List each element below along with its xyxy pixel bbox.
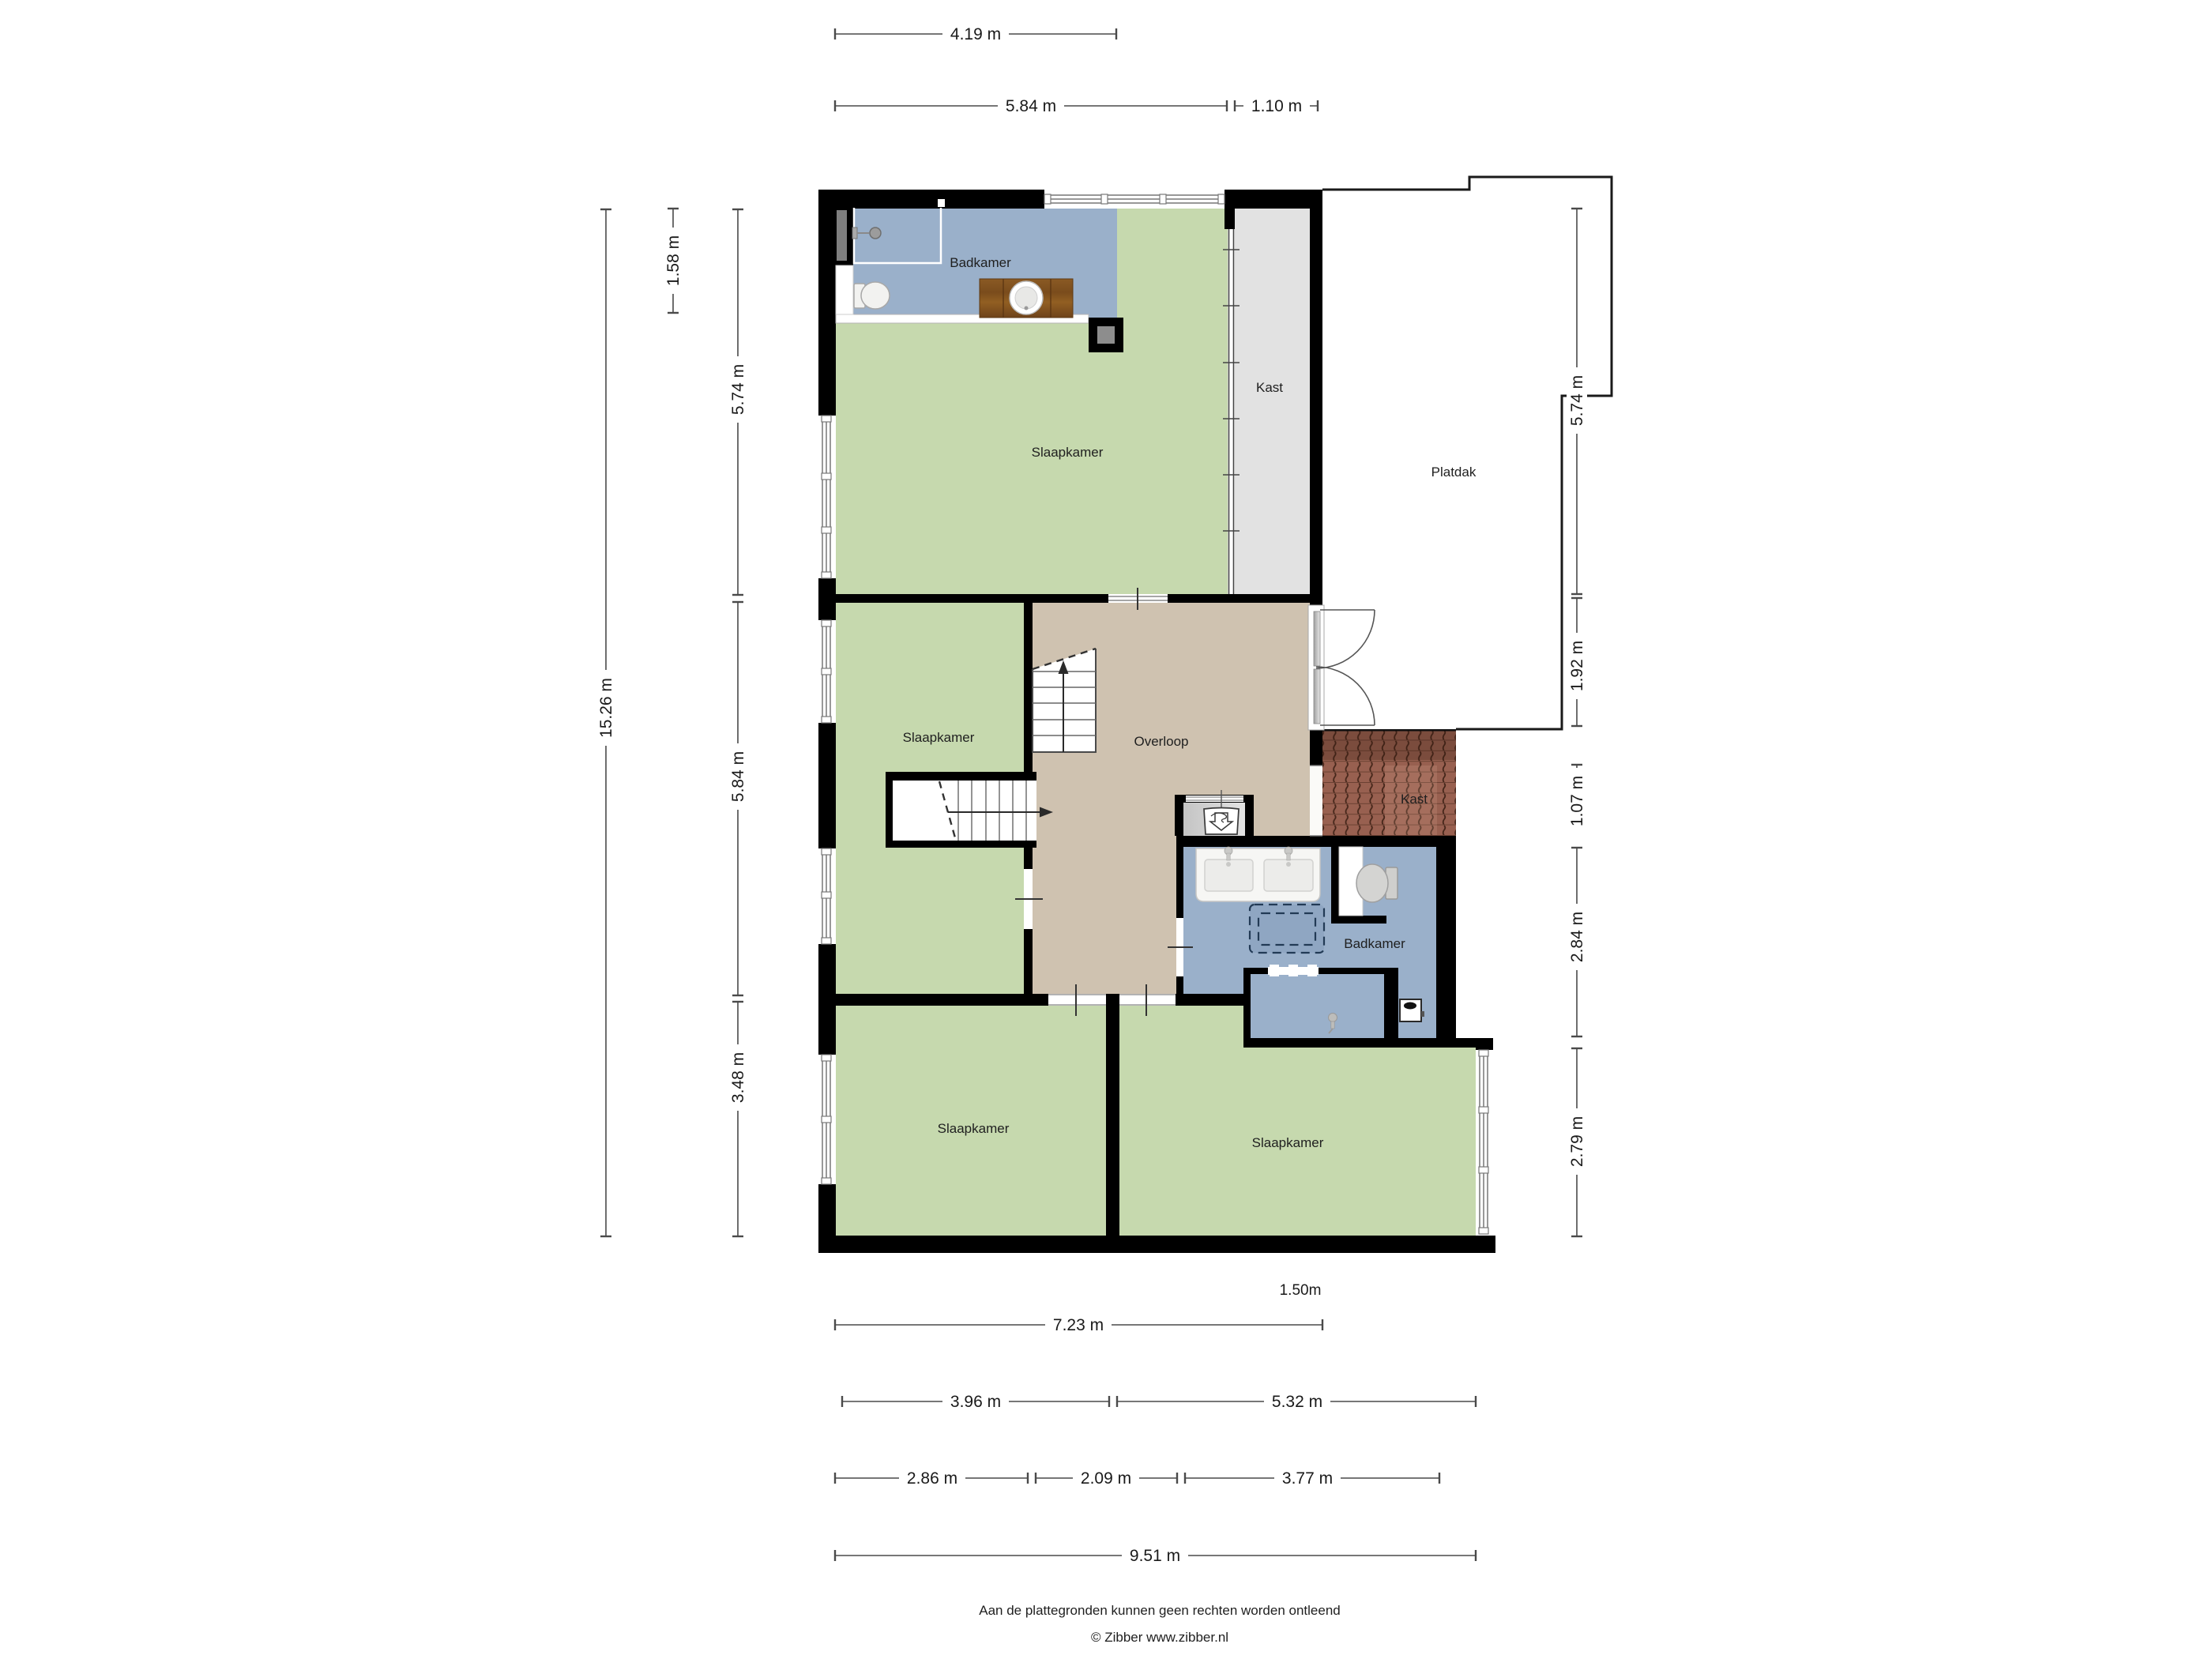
- svg-text:Kast: Kast: [1256, 380, 1283, 395]
- svg-text:2.84 m: 2.84 m: [1568, 912, 1586, 962]
- svg-text:5.74 m: 5.74 m: [1568, 375, 1586, 426]
- svg-text:Badkamer: Badkamer: [950, 255, 1011, 270]
- svg-text:1.07 m: 1.07 m: [1568, 776, 1586, 826]
- svg-text:2.86 m: 2.86 m: [907, 1469, 957, 1488]
- svg-text:3.48 m: 3.48 m: [729, 1052, 747, 1103]
- svg-text:Slaapkamer: Slaapkamer: [1252, 1135, 1324, 1150]
- svg-text:4.19 m: 4.19 m: [950, 25, 1001, 43]
- svg-text:Slaapkamer: Slaapkamer: [938, 1121, 1010, 1136]
- svg-text:© Zibber www.zibber.nl: © Zibber www.zibber.nl: [1091, 1630, 1228, 1645]
- svg-text:5.32 m: 5.32 m: [1272, 1393, 1322, 1411]
- svg-text:1.10 m: 1.10 m: [1251, 97, 1302, 115]
- svg-text:1.58 m: 1.58 m: [664, 235, 683, 286]
- svg-text:5.74 m: 5.74 m: [729, 364, 747, 415]
- svg-text:Badkamer: Badkamer: [1344, 936, 1405, 951]
- svg-text:Slaapkamer: Slaapkamer: [903, 730, 975, 745]
- svg-text:1.50m: 1.50m: [1280, 1282, 1322, 1299]
- svg-text:Aan de plattegronden kunnen ge: Aan de plattegronden kunnen geen rechten…: [979, 1603, 1340, 1618]
- svg-text:Overloop: Overloop: [1134, 734, 1189, 749]
- svg-text:7.23 m: 7.23 m: [1053, 1316, 1104, 1334]
- svg-text:Kast: Kast: [1401, 792, 1428, 807]
- svg-text:5.84 m: 5.84 m: [1006, 97, 1056, 115]
- svg-text:15.26 m: 15.26 m: [597, 678, 615, 738]
- svg-text:2.09 m: 2.09 m: [1081, 1469, 1131, 1488]
- svg-text:5.84 m: 5.84 m: [729, 751, 747, 802]
- svg-text:2.79 m: 2.79 m: [1568, 1116, 1586, 1167]
- svg-text:1.92 m: 1.92 m: [1568, 641, 1586, 691]
- svg-text:Platdak: Platdak: [1431, 465, 1477, 480]
- svg-text:Slaapkamer: Slaapkamer: [1032, 445, 1104, 460]
- svg-text:9.51 m: 9.51 m: [1130, 1547, 1180, 1565]
- svg-text:3.96 m: 3.96 m: [950, 1393, 1001, 1411]
- svg-text:3.77 m: 3.77 m: [1282, 1469, 1333, 1488]
